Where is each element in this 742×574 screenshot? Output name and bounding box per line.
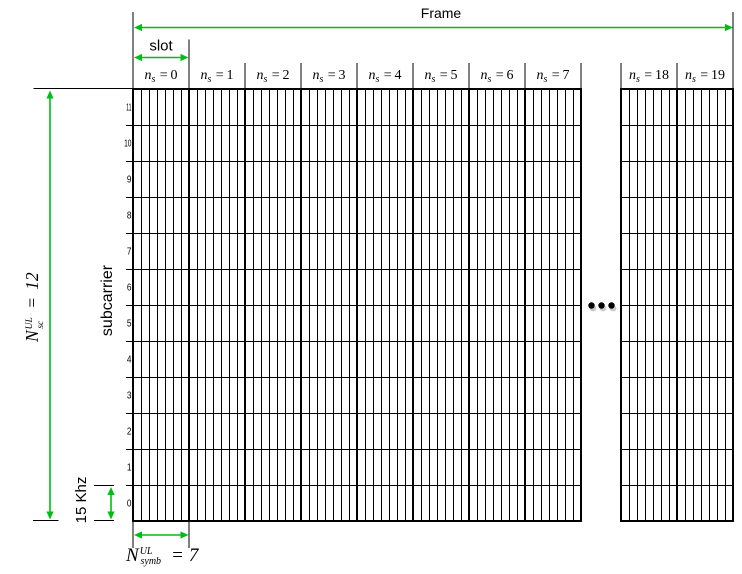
svg-text:ns = 3: ns = 3 bbox=[313, 68, 346, 85]
svg-text:ns = 7: ns = 7 bbox=[537, 68, 570, 85]
svg-text:7: 7 bbox=[127, 247, 132, 258]
svg-text:4: 4 bbox=[127, 355, 132, 366]
svg-text:ns = 6: ns = 6 bbox=[481, 68, 514, 85]
svg-text:ns = 18: ns = 18 bbox=[629, 68, 669, 85]
svg-text:1: 1 bbox=[127, 463, 132, 474]
svg-text:15 Khz: 15 Khz bbox=[73, 477, 90, 524]
svg-text:ns = 0: ns = 0 bbox=[145, 68, 178, 85]
svg-text:ns = 2: ns = 2 bbox=[257, 68, 290, 85]
svg-text:11: 11 bbox=[126, 103, 132, 114]
svg-text:2: 2 bbox=[127, 427, 132, 438]
svg-text:0: 0 bbox=[127, 499, 132, 510]
svg-text:6: 6 bbox=[127, 283, 132, 294]
svg-text:9: 9 bbox=[127, 175, 132, 186]
svg-text:5: 5 bbox=[127, 319, 132, 330]
svg-text:ns = 4: ns = 4 bbox=[369, 68, 402, 85]
svg-text:10: 10 bbox=[124, 139, 132, 150]
svg-text:ns = 19: ns = 19 bbox=[685, 68, 725, 85]
svg-text:slot: slot bbox=[149, 38, 173, 55]
svg-text:subcarrier: subcarrier bbox=[99, 264, 116, 336]
svg-text:ns = 1: ns = 1 bbox=[201, 68, 234, 85]
svg-text:8: 8 bbox=[127, 211, 132, 222]
svg-text:Frame: Frame bbox=[421, 5, 462, 21]
svg-text:3: 3 bbox=[127, 391, 132, 402]
svg-text:ns = 5: ns = 5 bbox=[425, 68, 458, 85]
